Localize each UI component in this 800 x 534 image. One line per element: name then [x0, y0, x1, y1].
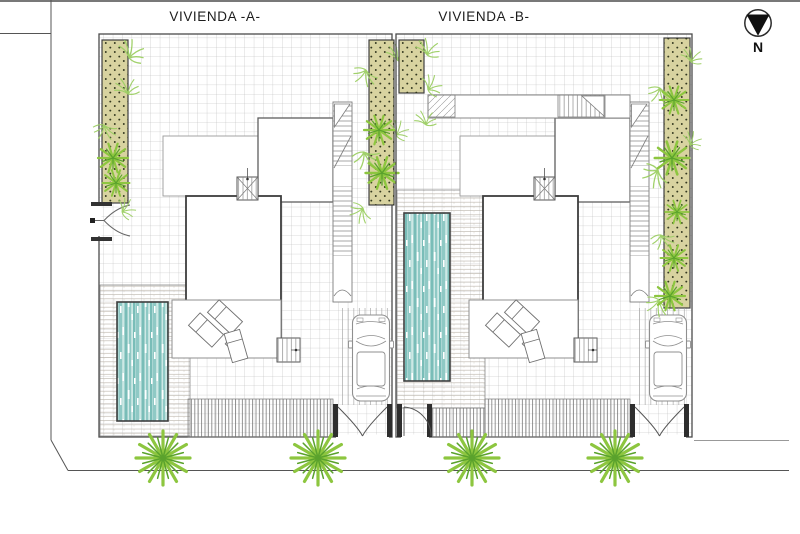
plot-b	[396, 34, 705, 439]
north-label: N	[753, 39, 763, 55]
architectural-site-plan: VIVIENDA -A- VIVIENDA -B- N	[0, 0, 800, 534]
plot-b-title: VIVIENDA -B-	[438, 9, 529, 24]
north-arrow-icon	[745, 10, 771, 36]
plot-a-title: VIVIENDA -A-	[169, 9, 260, 24]
house-b-roof-details	[428, 95, 630, 118]
pool-b	[404, 213, 450, 381]
pool-a	[117, 302, 168, 421]
plot-a	[90, 34, 413, 439]
site-plan-canvas: VIVIENDA -A- VIVIENDA -B- N	[0, 0, 800, 534]
